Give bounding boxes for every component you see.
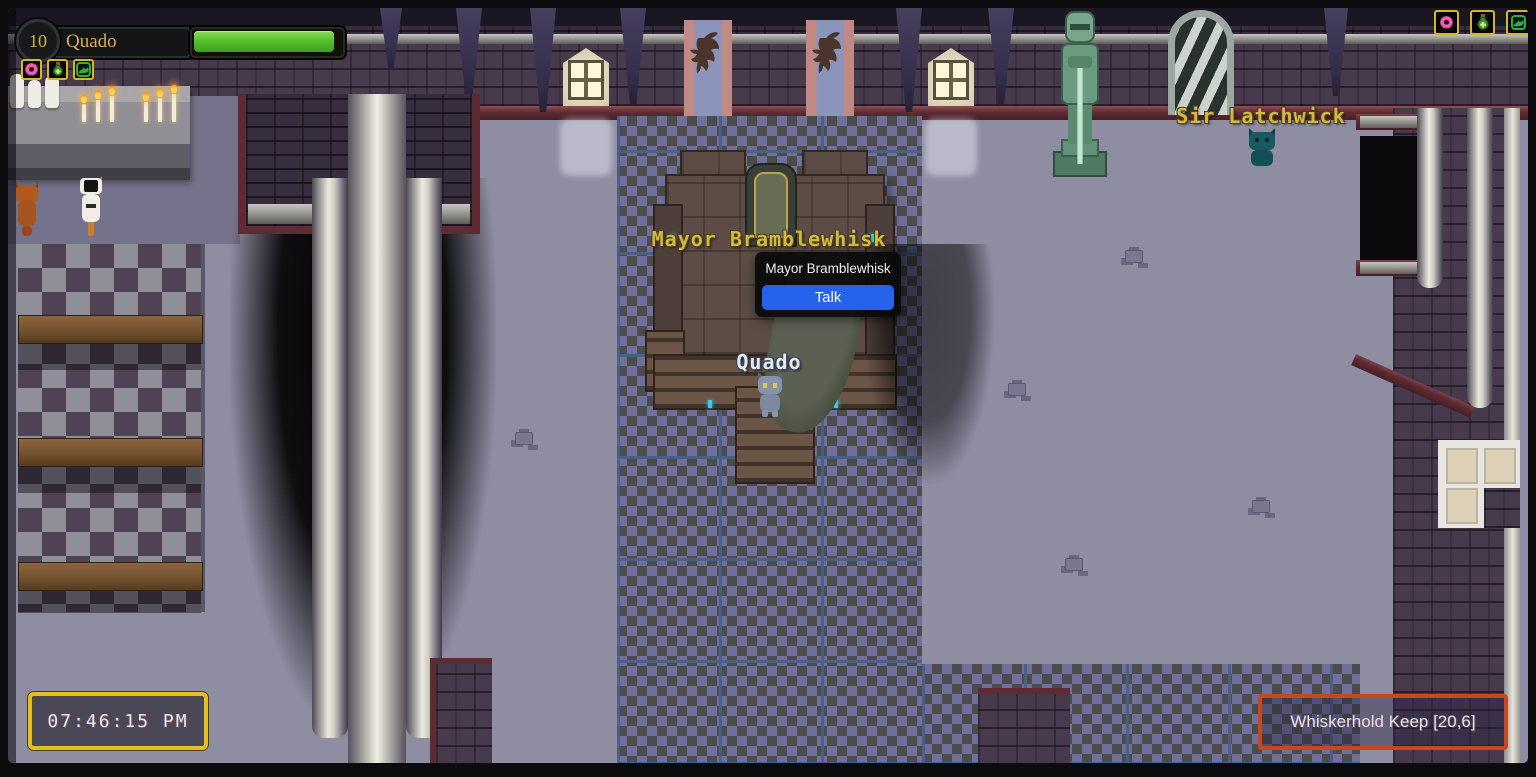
donut-button[interactable] — [21, 59, 42, 80]
floor-crack — [515, 432, 533, 445]
game-viewport[interactable]: Mayor Bramblewhisk Sir Latchwick Quado M… — [8, 8, 1528, 763]
cat-run-button[interactable] — [73, 59, 94, 80]
context-menu-title: Mayor Bramblewhisk — [762, 261, 894, 276]
cat-run-button[interactable] — [1506, 10, 1528, 35]
location-text: Whiskerhold Keep [20,6] — [1290, 712, 1475, 732]
window-panel — [1438, 440, 1520, 528]
potion-button[interactable] — [47, 59, 68, 80]
cat-run-icon — [1511, 15, 1526, 30]
npc-fox-sprite[interactable] — [14, 182, 40, 238]
donut-icon — [1440, 16, 1453, 29]
window-pane — [1484, 448, 1516, 484]
clock-time-text: 07:46:15 PM — [47, 711, 188, 732]
npc-label-mayor: Mayor Bramblewhisk — [619, 227, 919, 251]
shelf — [18, 562, 203, 591]
floor-crack — [1252, 500, 1270, 513]
top-right-bar — [1434, 10, 1528, 35]
game-clock: 07:46:15 PM — [28, 692, 208, 750]
potion-icon — [52, 62, 64, 77]
npc-sir-latchwick-sprite[interactable] — [1247, 128, 1277, 168]
lantern-pane — [568, 60, 604, 100]
game-frame: Mayor Bramblewhisk Sir Latchwick Quado M… — [0, 0, 1536, 777]
floor-crack — [1125, 250, 1143, 263]
metal-pillar — [312, 178, 348, 738]
metal-pillar — [1417, 108, 1443, 288]
checker-shelf-wall — [18, 244, 205, 612]
potion-icon — [1476, 14, 1490, 31]
knight-statue-icon — [1048, 8, 1112, 180]
npc-context-menu: Mayor Bramblewhisk Talk — [755, 252, 901, 317]
talk-button[interactable]: Talk — [762, 285, 894, 310]
shelf-shadow — [18, 342, 201, 370]
staircase-icon — [1168, 10, 1234, 115]
candles — [74, 82, 184, 142]
npc-white-cat-sprite[interactable] — [78, 174, 104, 238]
wall-top-eave — [8, 8, 1528, 26]
right-bright-strip — [1504, 108, 1520, 763]
shelf-shadow — [18, 465, 201, 493]
donut-button[interactable] — [1434, 10, 1459, 35]
metal-pillar — [1467, 108, 1493, 408]
cat-figurine-icon — [28, 80, 41, 108]
level-text: 10 — [29, 31, 47, 52]
cat-figurine-icon — [45, 76, 59, 108]
stone-column — [348, 94, 406, 763]
light-shaft — [925, 118, 977, 176]
cat-run-icon — [76, 62, 91, 77]
window-brick-corner — [1484, 488, 1520, 528]
health-bar — [188, 25, 347, 60]
potion-button[interactable] — [1470, 10, 1495, 35]
lantern-pane — [933, 60, 969, 100]
bottom-brick-block — [430, 658, 492, 763]
shelf — [18, 315, 203, 344]
level-badge: 10 — [16, 19, 60, 63]
location-banner: Whiskerhold Keep [20,6] — [1258, 694, 1508, 750]
shelf-shadow — [18, 589, 201, 613]
player-label: Quado — [669, 350, 869, 374]
right-ledge-cap — [1360, 262, 1422, 274]
donut-icon — [25, 63, 38, 76]
health-bar-fill — [194, 31, 334, 52]
metal-pillar — [406, 178, 442, 738]
floor-crack — [1008, 383, 1026, 396]
player-name-text: Quado — [66, 31, 117, 53]
window-pane — [1446, 448, 1478, 484]
light-shaft — [560, 118, 612, 176]
player-sprite — [754, 372, 786, 418]
npc-label-sir-latchwick: Sir Latchwick — [1111, 104, 1411, 128]
quickbar — [21, 59, 94, 80]
window-pane — [1446, 488, 1478, 524]
floor-crack — [1065, 558, 1083, 571]
bottom-brick-block — [978, 688, 1070, 763]
shelf — [18, 438, 203, 467]
left-edge-shade — [8, 8, 16, 763]
sconce-light-icon — [708, 400, 712, 408]
